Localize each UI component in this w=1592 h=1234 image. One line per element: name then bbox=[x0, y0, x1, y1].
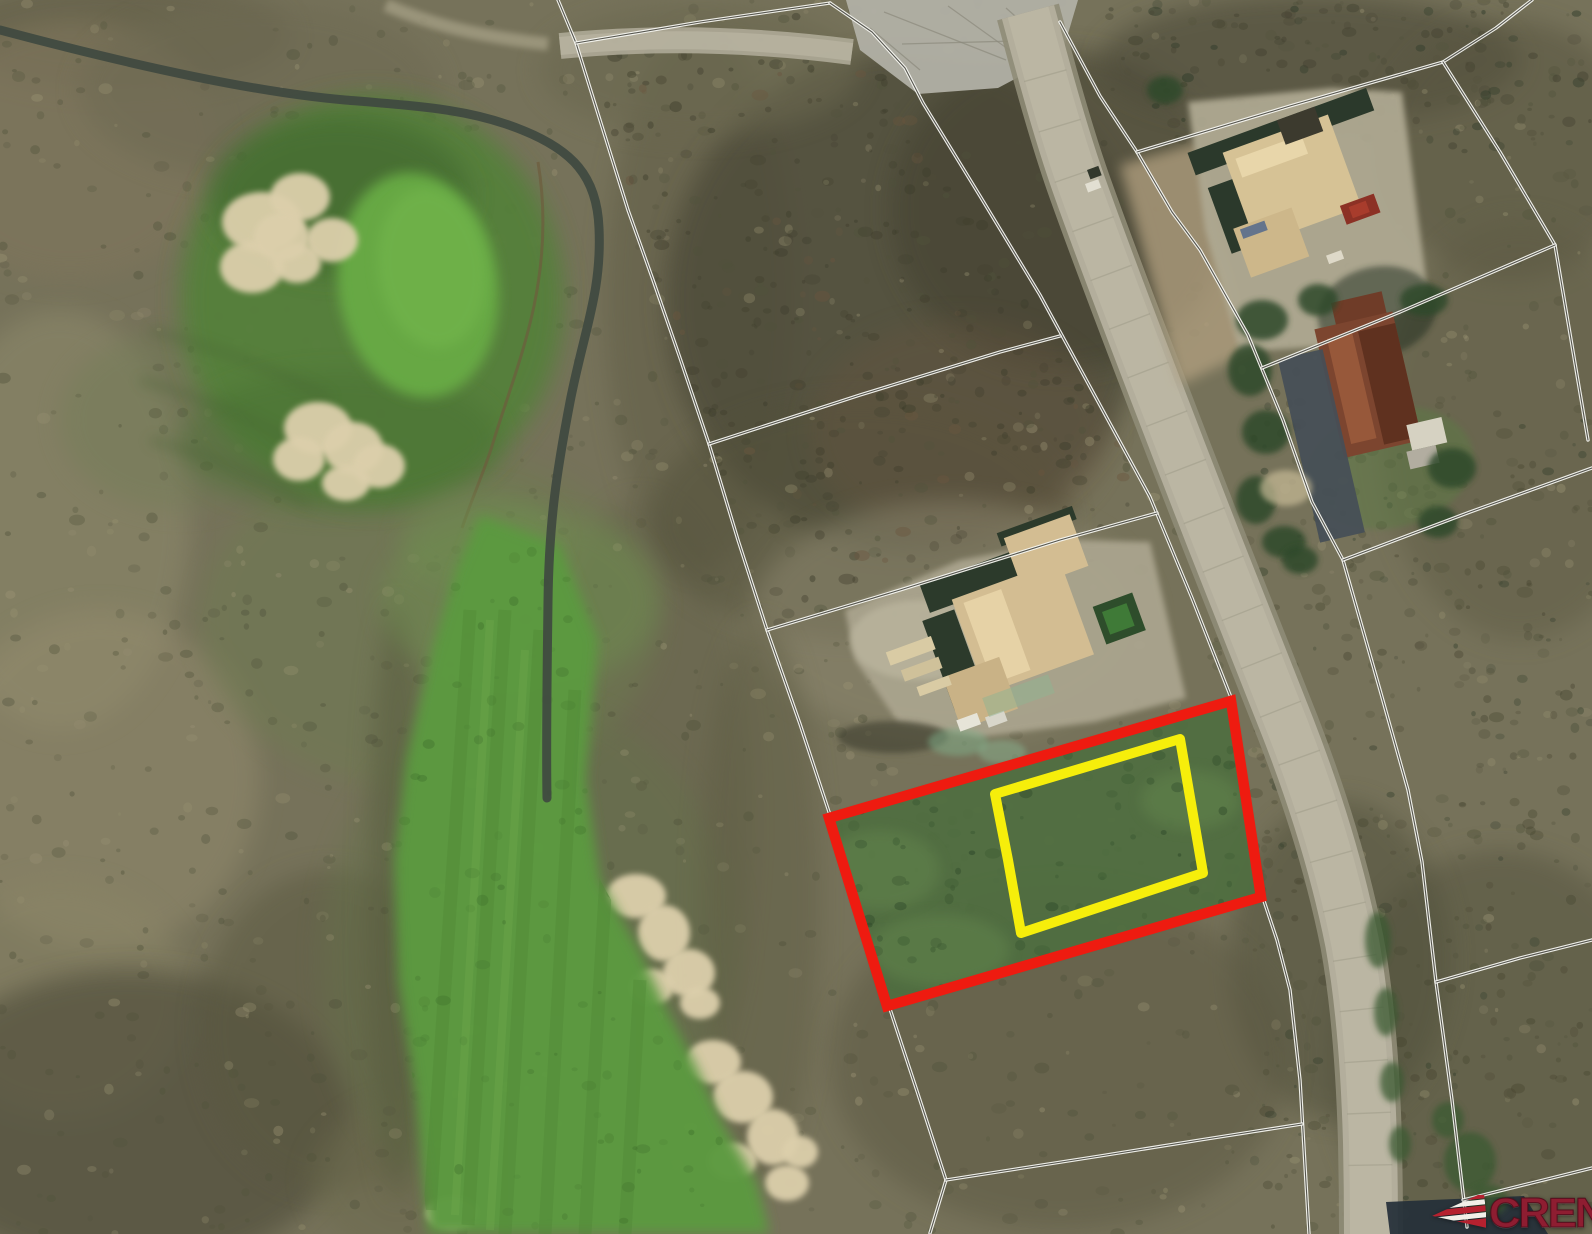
bush bbox=[1380, 1062, 1404, 1102]
aerial-map-image: CREN bbox=[0, 0, 1592, 1234]
aerial-map-svg bbox=[0, 0, 1592, 1234]
sand-bunker bbox=[273, 437, 325, 481]
sand-bunker bbox=[765, 1165, 809, 1201]
sand-bunker bbox=[254, 213, 310, 261]
sand-bunker bbox=[680, 987, 720, 1019]
sand-bunker bbox=[322, 465, 370, 501]
bush bbox=[1365, 912, 1391, 968]
bush bbox=[1444, 1132, 1496, 1192]
tree bbox=[1428, 448, 1476, 488]
tree bbox=[1147, 76, 1183, 104]
bush bbox=[1432, 1102, 1464, 1138]
tree bbox=[1236, 300, 1288, 340]
tree bbox=[1228, 344, 1272, 396]
bush bbox=[1389, 1126, 1411, 1162]
tree bbox=[1418, 506, 1458, 538]
cren-watermark: CREN bbox=[1432, 1192, 1592, 1234]
tree bbox=[1298, 284, 1338, 316]
cren-stripes-icon bbox=[1432, 1195, 1486, 1231]
cren-logo-text: CREN bbox=[1489, 1192, 1592, 1234]
sand-bunker bbox=[782, 1136, 818, 1168]
tree bbox=[1282, 546, 1318, 574]
bush bbox=[1374, 988, 1398, 1036]
